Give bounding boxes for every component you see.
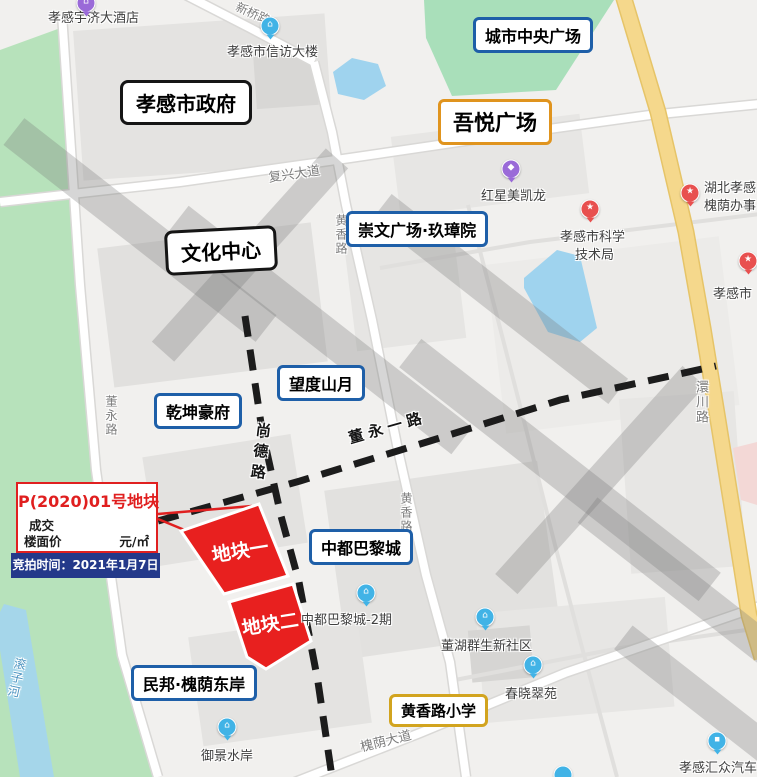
building-pin-icon: ⌂ — [357, 584, 376, 603]
legend-price-unit: 元/㎡ — [119, 531, 149, 550]
poi-label-paris-phase2: 中都巴黎城-2期 — [301, 609, 392, 628]
poi-label-yujing-shuian: 御景水岸 — [201, 745, 253, 764]
poi-label-huaiyin-office-line1: 湖北孝感 — [704, 177, 756, 196]
legend-auction-date-bar: 竞拍时间：2021年1月7日 — [11, 553, 160, 578]
car-pin-icon: ▪ — [708, 732, 727, 751]
poi-label-donghu-community: 董湖群生新社区 — [441, 635, 532, 654]
building-pin-icon: ⌂ — [261, 17, 280, 36]
poi-label-xinfang-building: 孝感市信访大楼 — [227, 41, 318, 60]
road-label-huanchuan: 澴川路 — [691, 380, 710, 425]
label-box-xiaogan-government: 孝感市政府 — [120, 80, 252, 125]
poi-label-xiaogan-city: 孝感市 — [713, 283, 752, 302]
star-pin-icon: ★ — [681, 184, 700, 203]
poi-label-science-bureau-line1: 孝感市科学 — [560, 226, 625, 245]
label-box-wuyue-plaza: 吾悦广场 — [438, 99, 552, 145]
poi-label-huaiyin-office-line2: 槐荫办事 — [704, 195, 756, 214]
label-box-minbang-huaiyin: 民邦·槐荫东岸 — [131, 665, 257, 701]
building-pin-icon: ⌂ — [218, 718, 237, 737]
label-box-city-central-plaza: 城市中央广场 — [473, 17, 593, 53]
star-pin-icon: ★ — [739, 252, 757, 271]
road-label-dongyong: 董永路 — [103, 395, 120, 437]
legend-floor-price-label: 楼面价 — [24, 531, 62, 550]
shopping-pin-icon: ◆ — [502, 160, 521, 179]
label-box-chongwen-plaza: 崇文广场·玖璋院 — [346, 211, 488, 247]
building-pin-icon: ⌂ — [476, 608, 495, 627]
building-pin-icon — [554, 766, 573, 777]
label-box-zhongdu-paris-city: 中都巴黎城 — [309, 529, 413, 565]
map-canvas[interactable]: 新桥路 复兴大道 董永路 尚德路 董永一路 黄香路 黄香路 澴川路 槐荫大道 滚… — [0, 0, 757, 777]
road-label-huangxiang-south: 黄香路 — [398, 492, 415, 534]
poi-label-chunxiao-cuiyuan: 春晓翠苑 — [505, 683, 557, 702]
poi-label-science-bureau-line2: 技术局 — [575, 244, 614, 263]
legend-card: P(2020)01号地块 成交 楼面价 元/㎡ — [16, 482, 158, 553]
star-pin-icon: ★ — [581, 200, 600, 219]
label-box-qiankun-haofu: 乾坤豪府 — [154, 393, 242, 429]
map-base-layer — [0, 0, 757, 777]
poi-label-yuji-hotel: 孝感宇济大酒店 — [48, 7, 139, 26]
poi-label-huizhong-auto: 孝感汇众汽车 — [679, 757, 757, 776]
label-box-huangxiang-school: 黄香路小学 — [389, 694, 488, 727]
poi-label-red-star-macalline: 红星美凯龙 — [481, 185, 546, 204]
legend-title: P(2020)01号地块 — [18, 488, 156, 512]
label-box-wangdu-shanyue: 望度山月 — [277, 365, 365, 401]
building-pin-icon: ⌂ — [524, 656, 543, 675]
label-box-culture-center: 文化中心 — [164, 225, 278, 276]
